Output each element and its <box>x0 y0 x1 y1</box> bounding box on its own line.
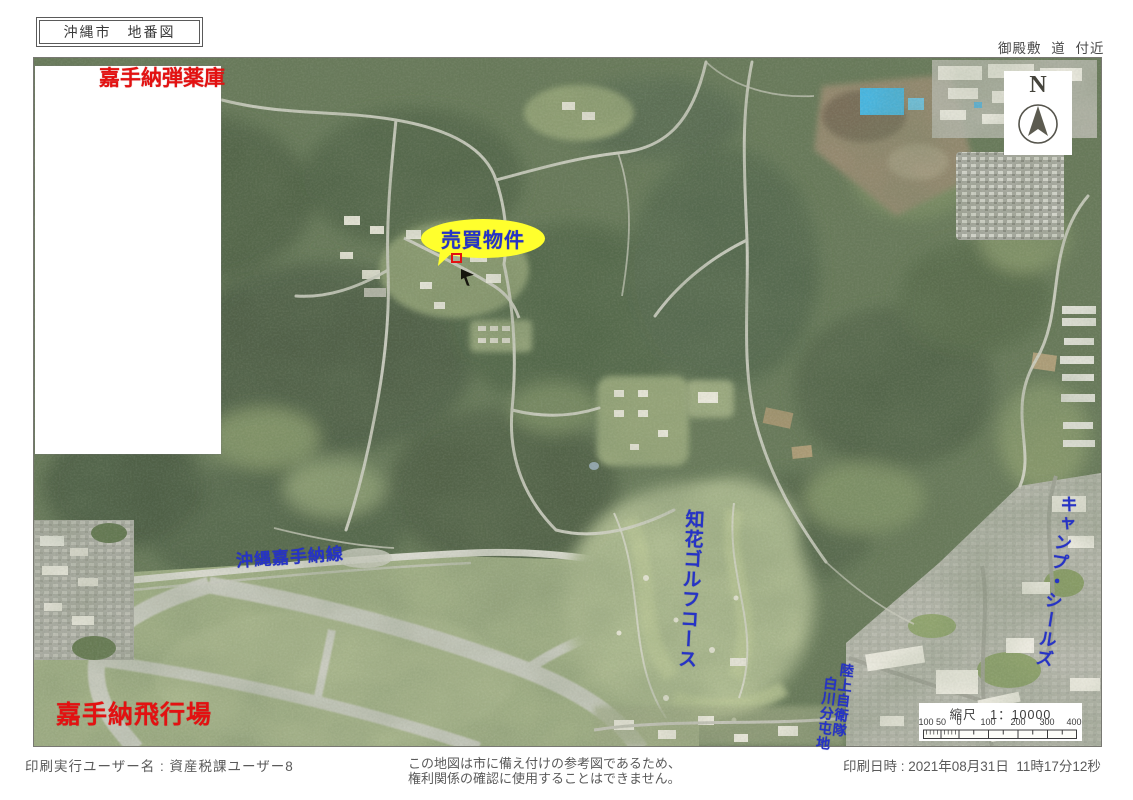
page-title: 沖縄市 地番図 <box>39 20 200 44</box>
scale-tick: 400 <box>1066 717 1081 727</box>
property-bubble-label: 売買物件 <box>441 224 525 253</box>
scale-tick: 200 <box>1010 717 1025 727</box>
page: 沖縄市 地番図 御殿敷 道 付近 <box>0 0 1133 800</box>
masked-region <box>35 66 221 454</box>
property-bubble: 売買物件 <box>421 219 545 258</box>
footer-printed-at: 印刷日時 : 2021年08月31日 11時17分12秒 <box>843 755 1101 775</box>
property-marker <box>451 253 462 263</box>
footer-printed-by: 印刷実行ユーザー名 : 資産税課ユーザー8 <box>25 755 294 775</box>
footer-disclaimer-line1: この地図は市に備え付けの参考図であるため、 <box>408 756 681 771</box>
title-box: 沖縄市 地番図 <box>36 17 203 47</box>
north-indicator: N <box>1004 71 1072 155</box>
area-note: 御殿敷 道 付近 <box>998 37 1120 57</box>
footer-disclaimer-line2: 権利関係の確認に使用することはできません。 <box>408 771 681 786</box>
scale-panel: 縮尺 1：10000 100 50 0 100 200 300 400 <box>919 703 1082 741</box>
scale-ticks: 100 50 0 100 200 300 400 <box>919 717 1082 727</box>
map-frame: 嘉手納弾薬庫 嘉手納飛行場 売買物件 沖縄嘉手納線 知花ゴルフコース キャンプ・… <box>33 57 1102 747</box>
scale-ruler <box>919 729 1082 740</box>
scale-tick: 100 <box>918 717 933 727</box>
label-airfield: 嘉手納飛行場 <box>56 702 212 728</box>
scale-tick: 100 <box>980 717 995 727</box>
scale-tick: 300 <box>1039 717 1054 727</box>
label-ammo-depot: 嘉手納弾薬庫 <box>99 68 225 90</box>
north-letter: N <box>1029 72 1046 98</box>
compass-icon <box>1015 98 1061 146</box>
footer-disclaimer: この地図は市に備え付けの参考図であるため、 権利関係の確認に使用することはできま… <box>408 756 681 786</box>
scale-tick: 0 <box>956 717 961 727</box>
scale-tick: 50 <box>936 717 946 727</box>
